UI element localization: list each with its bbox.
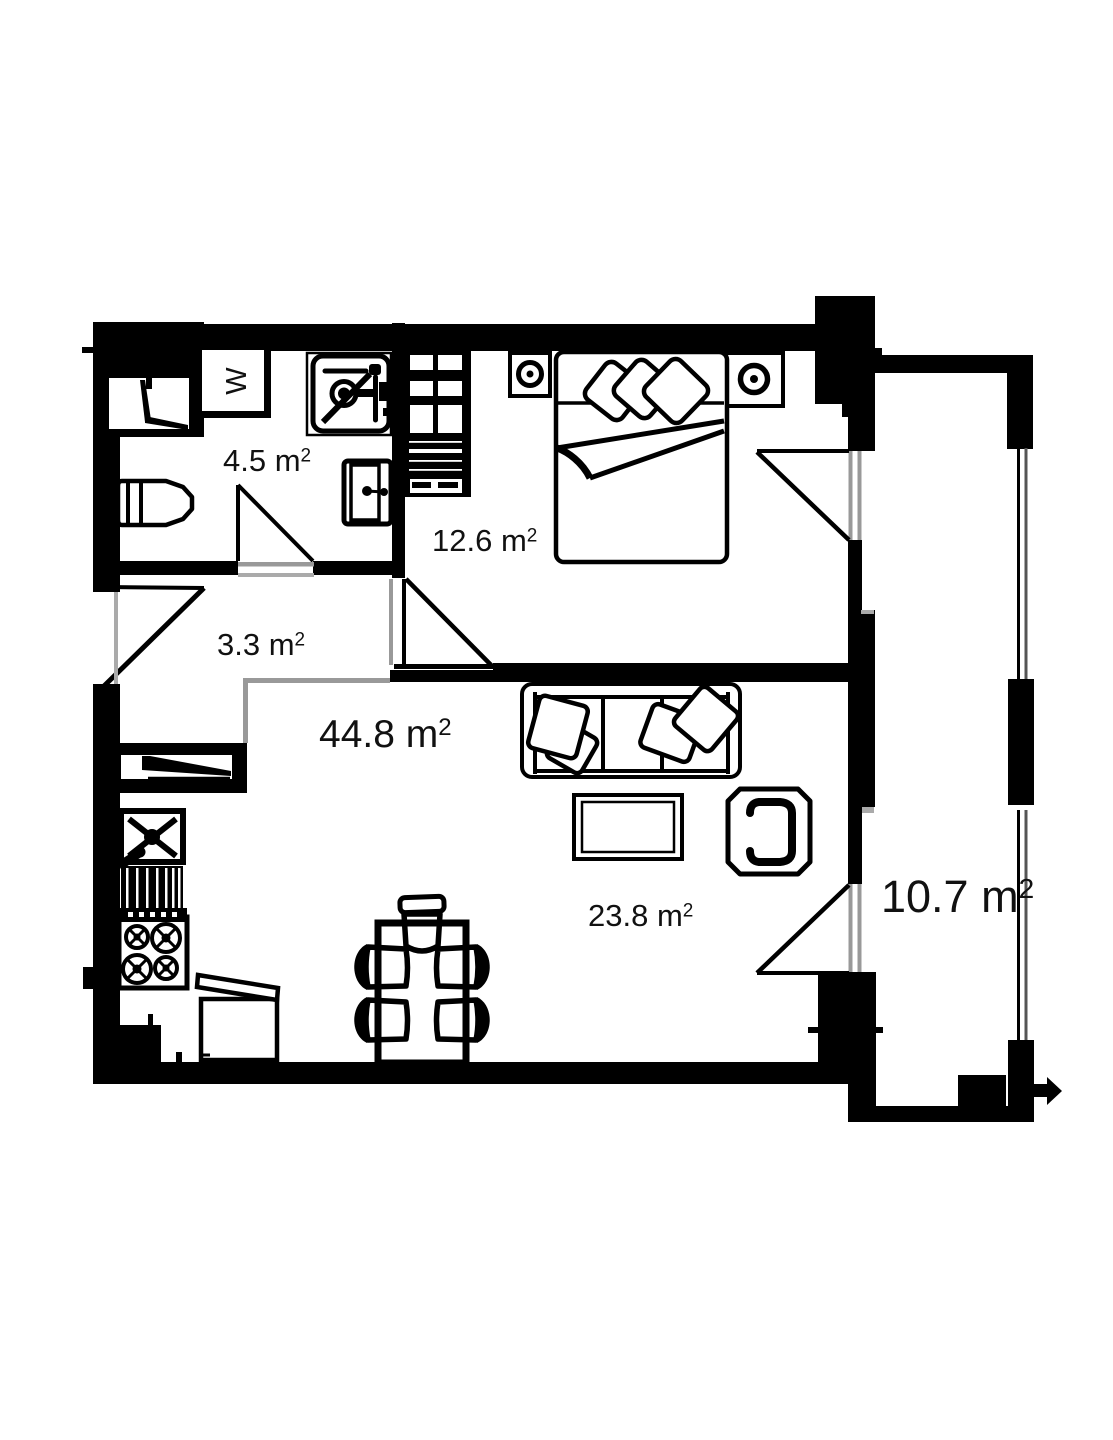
svg-text:44.8 m2: 44.8 m2 (319, 713, 452, 756)
svg-text:12.6 m2: 12.6 m2 (432, 523, 537, 558)
svg-text:23.8 m2: 23.8 m2 (588, 898, 693, 933)
svg-text:3.3 m2: 3.3 m2 (217, 627, 305, 662)
svg-text:W: W (221, 367, 253, 395)
svg-text:4.5 m2: 4.5 m2 (223, 443, 311, 478)
svg-text:10.7 m2: 10.7 m2 (881, 871, 1034, 922)
